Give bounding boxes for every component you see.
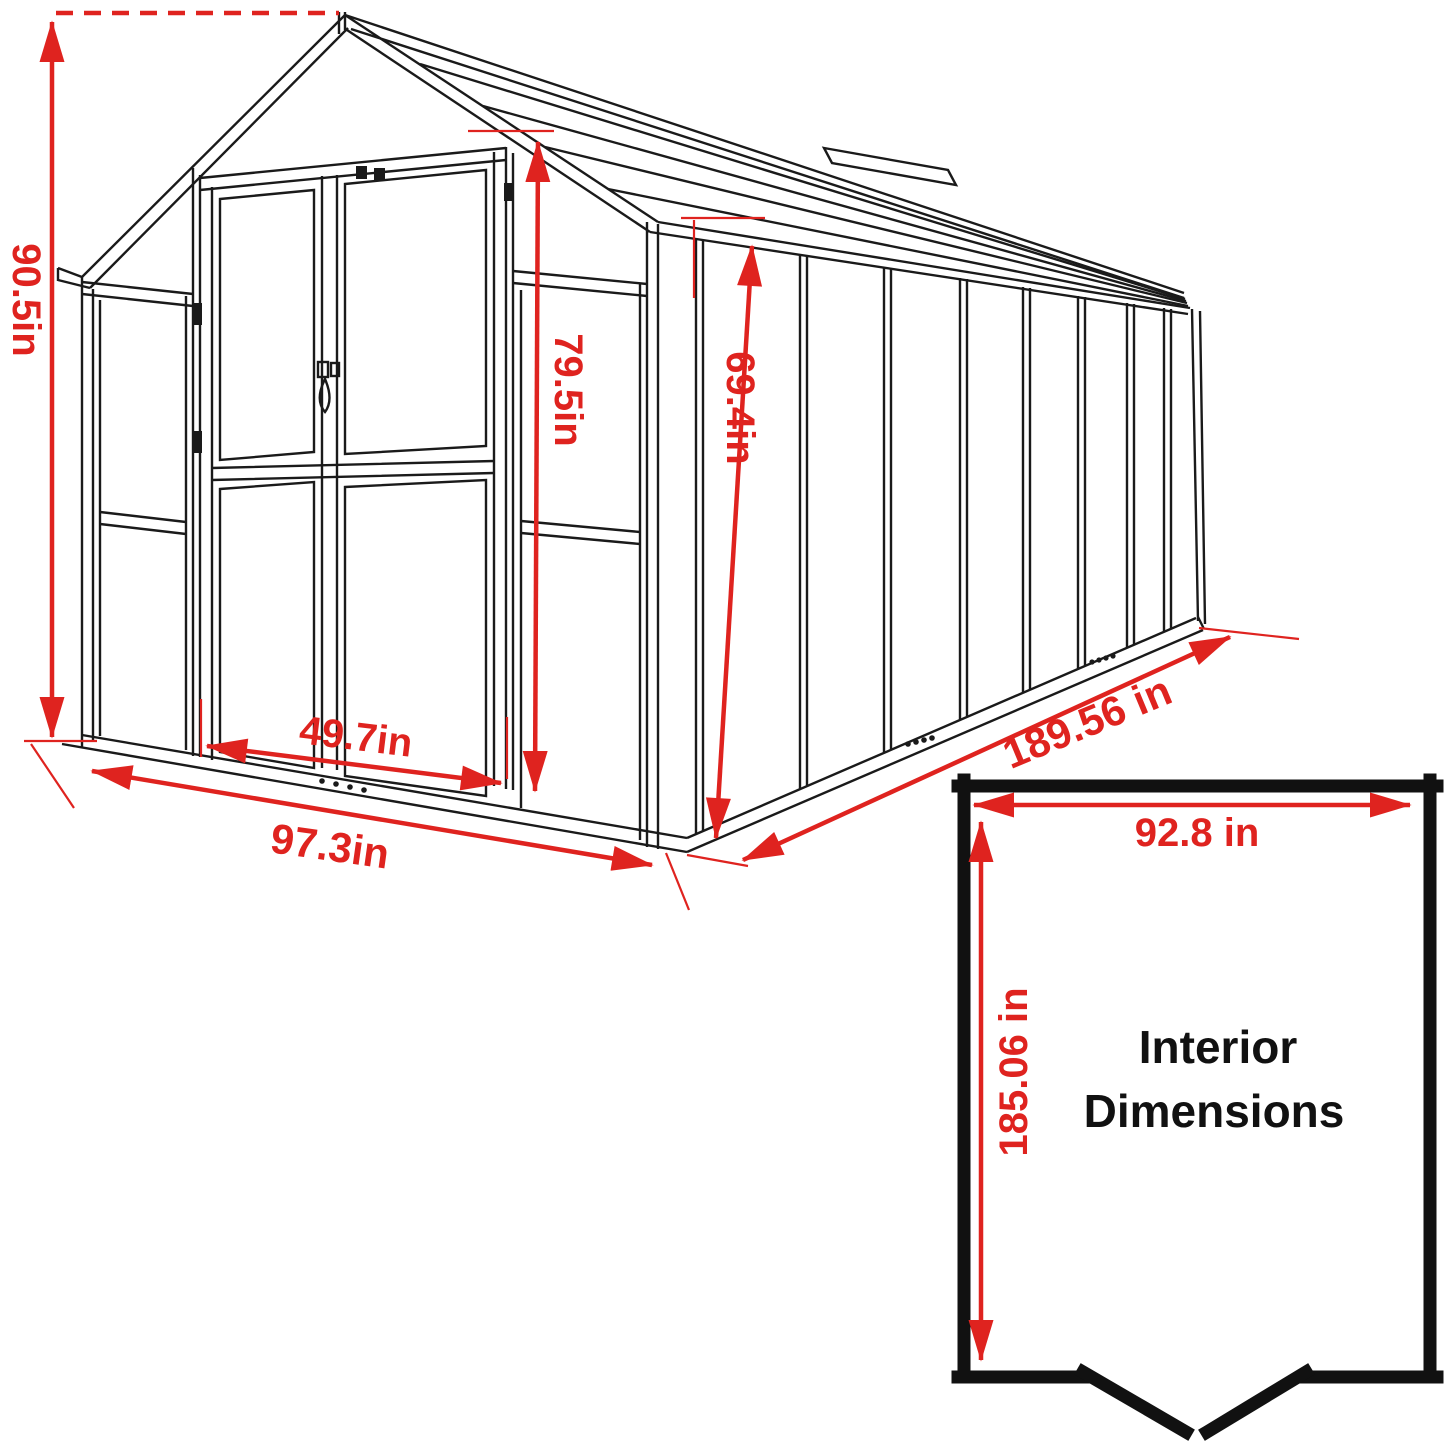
door-hinge (504, 183, 513, 201)
overall-height-label: 90.5in (4, 243, 48, 356)
door-pivot-block (356, 166, 367, 179)
door-hinge (193, 431, 202, 453)
interior-caption-line2: Dimensions (1084, 1085, 1345, 1137)
door-hinge (193, 303, 202, 325)
door-height-label: 79.5in (546, 333, 590, 446)
greenhouse-dimension-diagram: 90.5in 79.5in 69.4in 49.7in 97.3in 189.5… (0, 0, 1445, 1445)
wall-height-label: 69.4in (718, 351, 762, 464)
interior-caption-line1: Interior (1139, 1021, 1298, 1073)
door-pivot-block (374, 168, 385, 181)
interior-depth-label: 185.06 in (992, 987, 1036, 1156)
interior-width-label: 92.8 in (1135, 811, 1260, 855)
diagram-canvas: 90.5in 79.5in 69.4in 49.7in 97.3in 189.5… (0, 0, 1445, 1445)
